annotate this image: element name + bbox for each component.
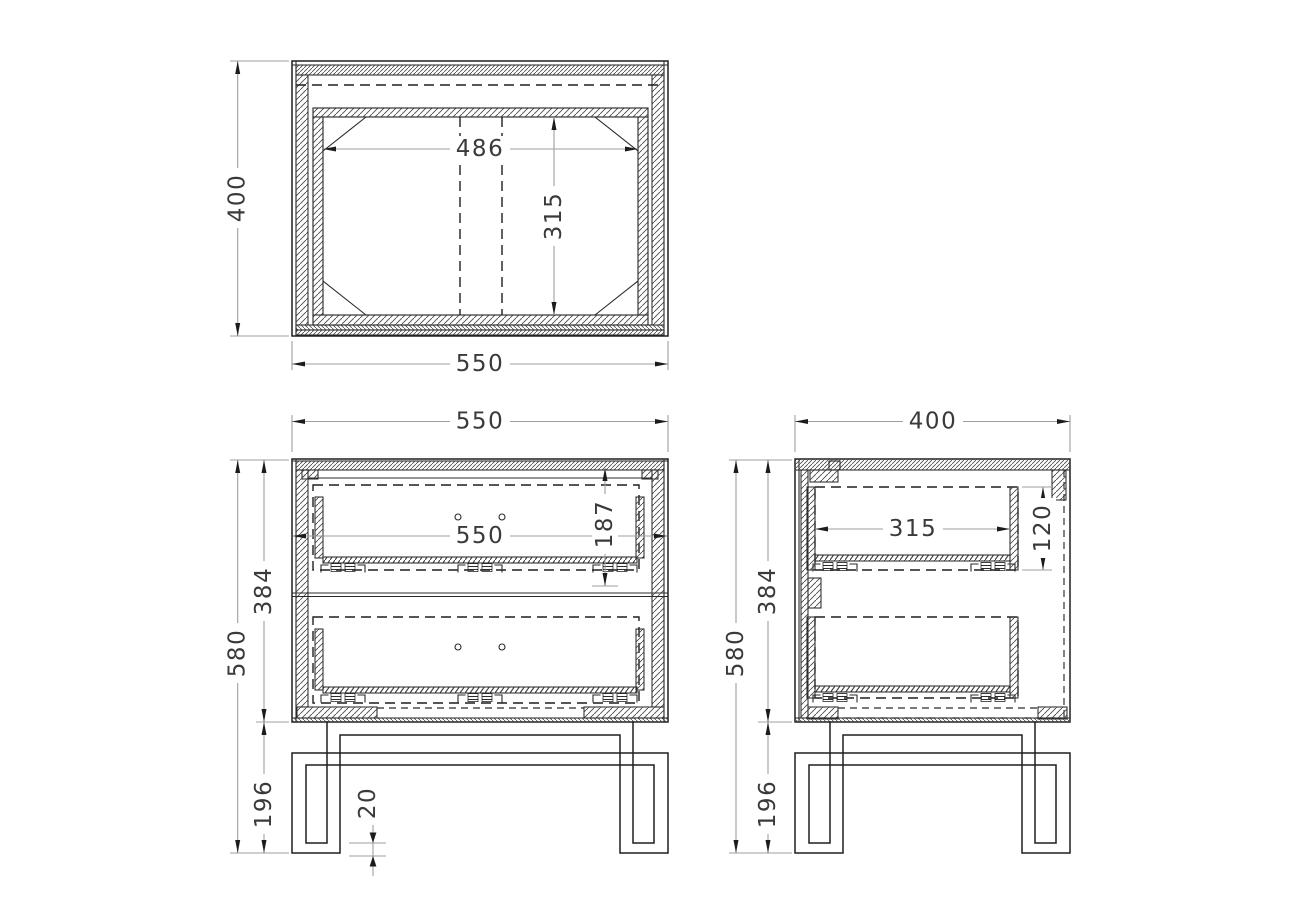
handle-hole: [499, 514, 505, 520]
dim-width: 550: [450, 351, 510, 377]
dim-label-187: 187: [592, 500, 618, 548]
front-edge-band-2: [296, 330, 664, 335]
top-panel-section: [296, 461, 664, 470]
dim-overall-depth: 400: [903, 409, 963, 435]
dim-overall-height: 580: [723, 623, 749, 683]
slide-bracket: [593, 694, 637, 703]
dim-label-400-side: 400: [909, 409, 957, 435]
top-view-cabinet-outline: [292, 61, 668, 336]
dim-depth: 400: [225, 168, 251, 228]
dim-leg-height: 196: [755, 774, 781, 834]
bottom-edge-band: [292, 718, 668, 722]
drawer-slide-rail: [323, 557, 637, 563]
front-edge-band: [296, 325, 664, 330]
slide-bracket: [458, 694, 502, 703]
bottom-edge-band: [795, 718, 1070, 722]
right-side-panel-section: [652, 75, 664, 325]
dim-leg-height: 196: [251, 774, 277, 834]
dim-label-196-side: 196: [755, 780, 781, 828]
left-side-panel-section: [296, 75, 308, 325]
dim-inner-width: 486: [450, 136, 510, 162]
dim-inner-depth: 315: [541, 186, 567, 246]
dim-leg-thickness: 20: [349, 781, 386, 876]
dim-interior-width: 550: [450, 523, 510, 549]
dim-label-580-front: 580: [225, 629, 251, 677]
technical-drawing-canvas: 486 315 400 550: [0, 0, 1300, 919]
drawer-slide-rail: [815, 555, 1010, 561]
front-legs: [292, 722, 668, 853]
drawing-sheet: 486 315 400 550: [0, 0, 1300, 919]
side-view: 400 315 120 384 580: [723, 409, 1070, 854]
drawer-front-section: [807, 617, 815, 698]
drawer-back-section: [1010, 487, 1018, 570]
right-side-panel: [652, 470, 664, 707]
handle-hole: [499, 644, 505, 650]
top-view: 486 315 400 550: [225, 61, 668, 377]
dim-drawer-box-height: 120: [1030, 498, 1056, 558]
left-side-panel: [296, 470, 308, 707]
front-view-dimensions: 550 550 187 384 580: [225, 409, 668, 877]
side-legs: [795, 722, 1070, 853]
dim-label-384-front: 384: [251, 567, 277, 615]
bottom-corner-block: [808, 707, 838, 719]
top-panel-section: [296, 65, 664, 75]
handle-hole: [455, 514, 461, 520]
dim-label-120: 120: [1030, 504, 1056, 552]
dim-label-550-front-inner: 550: [456, 523, 504, 549]
dim-cabinet-height: 384: [251, 561, 277, 621]
dim-overall-height: 580: [225, 623, 251, 683]
bottom-corner-block: [297, 707, 377, 718]
dim-label-550-topview: 550: [456, 351, 504, 377]
slide-bracket: [321, 694, 365, 703]
drawer-back-section: [1010, 617, 1018, 698]
side-lower-drawer: [807, 617, 1018, 702]
dim-cabinet-height: 384: [755, 561, 781, 621]
bottom-corner-block: [1038, 707, 1067, 719]
front-lower-drawer: [313, 617, 644, 703]
dim-label-20: 20: [355, 787, 381, 819]
dim-label-400-top: 400: [225, 174, 251, 222]
dim-label-196-front: 196: [251, 780, 277, 828]
dim-label-550-front-top: 550: [456, 409, 504, 435]
slide-bracket: [593, 564, 637, 573]
front-rail-block: [810, 470, 838, 482]
dim-label-580-side: 580: [723, 629, 749, 677]
dim-label-384-side: 384: [755, 567, 781, 615]
bottom-panel-hidden-lines: [808, 708, 1064, 718]
slide-bracket: [458, 564, 502, 573]
dim-label-486: 486: [456, 136, 504, 162]
mid-rail-block: [808, 578, 821, 608]
dim-drawer-depth: 315: [883, 516, 943, 542]
slide-bracket: [321, 564, 365, 573]
drawer-slide-rail: [815, 686, 1010, 692]
dim-overall-width: 550: [450, 409, 510, 435]
drawer-slide-rail: [323, 687, 637, 693]
drawer-front-section: [807, 487, 815, 570]
dim-drawer-front-height: 187: [592, 494, 618, 554]
bottom-corner-block: [584, 707, 664, 718]
front-view: 550 550 187 384 580: [225, 409, 668, 877]
side-cabinet: [795, 459, 1070, 722]
drawer-divider-rail: [292, 593, 668, 597]
dim-label-315-top: 315: [541, 192, 567, 240]
dim-label-315-side: 315: [889, 516, 937, 542]
handle-hole: [455, 644, 461, 650]
